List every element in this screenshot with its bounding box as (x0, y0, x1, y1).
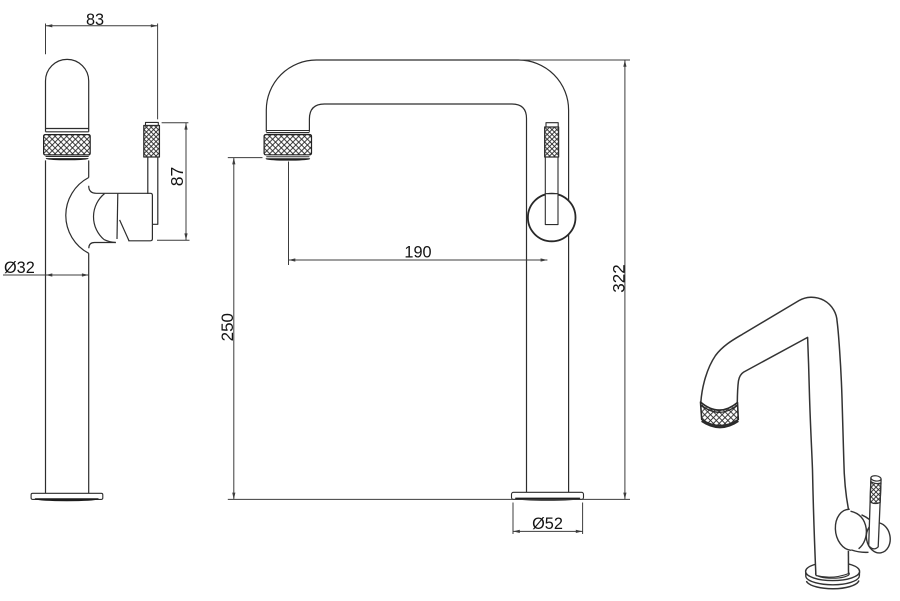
svg-text:Ø52: Ø52 (532, 515, 563, 533)
svg-text:190: 190 (404, 244, 431, 262)
svg-text:83: 83 (86, 11, 104, 29)
svg-text:250: 250 (218, 313, 237, 341)
svg-text:322: 322 (610, 264, 629, 292)
svg-text:Ø32: Ø32 (4, 259, 35, 277)
svg-text:87: 87 (167, 167, 187, 186)
